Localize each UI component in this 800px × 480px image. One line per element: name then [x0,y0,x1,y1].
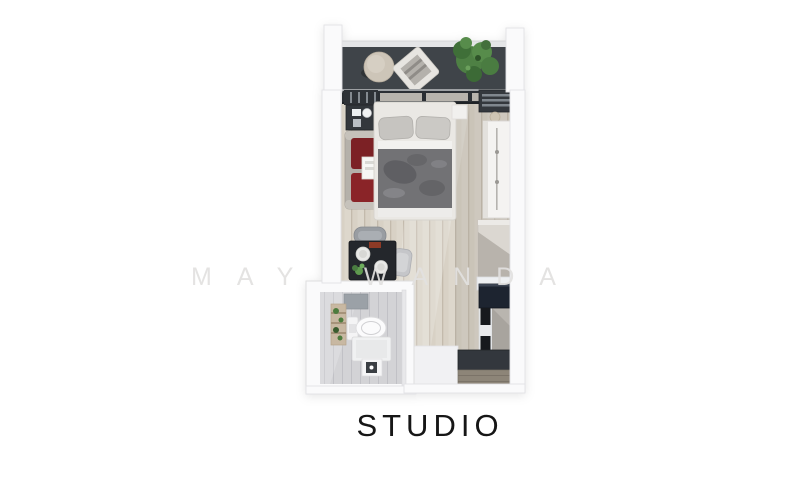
pillow-right [415,116,450,140]
dresser [478,220,515,277]
ac-unit [479,90,513,112]
towel-ladder [331,304,346,345]
curtain-box [344,90,378,105]
bath-mat [344,294,368,309]
bed-blanket [378,149,452,208]
right-wall [510,90,525,392]
bathroom [306,281,414,394]
bedside-shelf [452,105,467,119]
glass-panel [380,93,422,101]
pillow-left [378,116,413,140]
toilet [347,317,386,340]
wardrobe-handle [496,128,498,210]
bottom-wall-bathroom [306,386,416,394]
stool [490,112,500,122]
kitchen-lower-counter [458,350,512,370]
floor-plan-page: MAY WANDA STUDIO [0,0,800,480]
balcony [342,37,510,94]
glass-panel [426,93,468,101]
table-napkin [369,242,381,248]
bottom-wall-entry [404,384,525,393]
plan-title: STUDIO [30,408,800,444]
right-wall-top [506,28,524,92]
glass-partition [402,290,406,388]
left-wall-top [324,25,342,92]
left-wall [322,90,341,283]
bed [374,102,467,220]
appliance [481,308,491,325]
entry [404,346,512,388]
bed-foot [378,208,452,217]
nightstand [346,105,375,130]
